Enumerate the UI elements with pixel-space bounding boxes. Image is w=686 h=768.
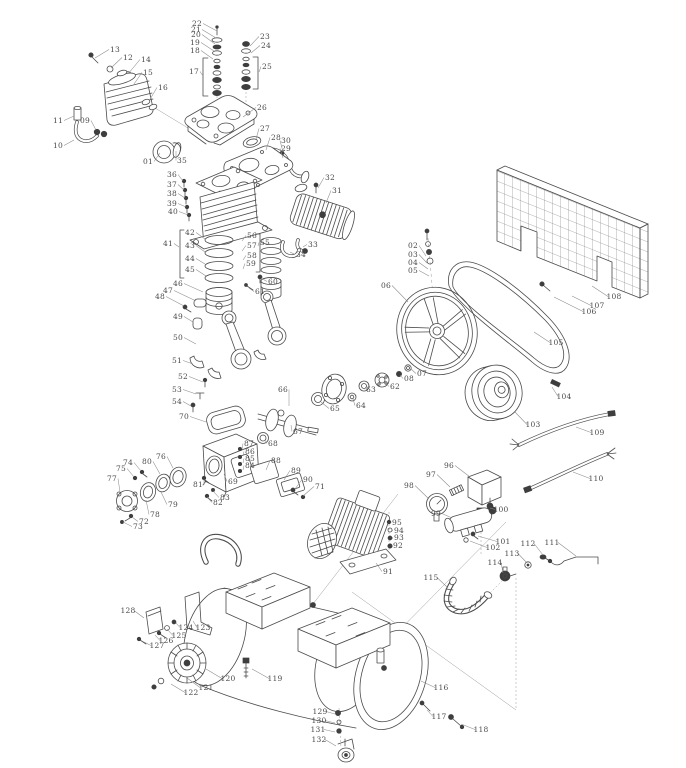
part-label-34: 34 [296, 250, 306, 259]
leader-line-44 [196, 259, 205, 265]
part-label-104: 104 [557, 392, 572, 401]
part-label-65: 65 [330, 404, 340, 413]
part-label-29: 29 [281, 144, 291, 153]
part-label-61: 61 [255, 287, 265, 296]
leader-line-98 [415, 486, 429, 500]
leader-line-04 [419, 263, 428, 270]
part-label-18: 18 [190, 46, 200, 55]
flywheel [387, 278, 487, 384]
part-label-121: 121 [199, 683, 214, 692]
part-label-108: 108 [607, 292, 622, 301]
part-label-90: 90 [303, 475, 313, 484]
exploded-diagram: 0102030405060708091011121314151617181920… [0, 0, 686, 768]
part-label-06: 06 [381, 281, 391, 290]
part-label-54: 54 [172, 397, 182, 406]
leader-line-24 [251, 46, 260, 54]
leader-line-55 [258, 243, 259, 247]
leader-line-31 [326, 191, 331, 204]
leader-line-07 [411, 369, 416, 374]
leader-line-97 [437, 475, 450, 488]
leader-line-102 [470, 541, 487, 548]
pulley-fasteners [348, 365, 411, 401]
electric-motor [303, 484, 396, 574]
connecting-rod-left [222, 311, 251, 369]
part-label-31: 31 [332, 186, 342, 195]
part-label-35: 35 [177, 156, 187, 165]
leader-line-72 [132, 517, 138, 522]
part-label-112: 112 [521, 539, 536, 548]
leader-line-82 [207, 497, 212, 503]
part-label-28: 28 [271, 133, 281, 142]
fin-pack-screw [540, 282, 544, 286]
leader-line-70 [190, 417, 206, 423]
leader-line-131 [324, 730, 335, 733]
part-label-30: 30 [281, 136, 291, 145]
part-label-37: 37 [167, 180, 177, 189]
part-label-57: 57 [247, 241, 257, 250]
part-label-130: 130 [312, 716, 327, 725]
petcock-bolt [89, 53, 93, 57]
connecting-rod-right [261, 291, 286, 345]
part-label-80: 80 [142, 457, 152, 466]
part-label-66: 66 [278, 385, 288, 394]
part-label-132: 132 [312, 735, 327, 744]
part-label-15: 15 [143, 68, 153, 77]
part-label-123: 123 [196, 623, 211, 632]
part-label-63: 63 [366, 385, 376, 394]
leader-line-132 [325, 740, 336, 747]
ring-68 [258, 433, 269, 444]
part-label-73: 73 [133, 522, 143, 531]
leader-line-83 [213, 491, 219, 498]
after-cooler [288, 192, 357, 242]
leader-line-74 [134, 463, 141, 472]
part-label-127: 127 [150, 641, 165, 650]
leader-line-23 [250, 37, 259, 47]
part-label-79: 79 [168, 500, 178, 509]
end-cover-77 [117, 491, 138, 512]
drain-bolt-head [243, 658, 249, 663]
leader-line-32 [318, 178, 324, 189]
part-label-98: 98 [404, 481, 414, 490]
leader-line-119 [252, 669, 269, 679]
diagram-page: 0102030405060708091011121314151617181920… [0, 0, 686, 768]
part-label-52: 52 [178, 372, 188, 381]
part-label-64: 64 [356, 401, 366, 410]
leader-line-73 [123, 522, 132, 527]
part-label-76: 76 [156, 452, 166, 461]
cylinder-head [185, 96, 257, 146]
part-label-114: 114 [488, 558, 503, 567]
leader-line-107 [572, 296, 591, 306]
part-label-87: 87 [244, 439, 254, 448]
part-label-129: 129 [313, 707, 328, 716]
part-label-107: 107 [590, 301, 605, 310]
part-label-95: 95 [392, 518, 402, 527]
leader-line-17 [200, 72, 203, 77]
part-label-02: 02 [408, 241, 418, 250]
part-label-45: 45 [185, 265, 195, 274]
part-label-86: 86 [245, 447, 255, 456]
part-label-10: 10 [53, 141, 63, 150]
part-label-42: 42 [185, 228, 195, 237]
part-label-19: 19 [190, 38, 200, 47]
shaft-key [551, 379, 561, 386]
part-label-113: 113 [505, 549, 520, 558]
part-label-22: 22 [192, 19, 202, 28]
part-label-43: 43 [185, 241, 195, 250]
part-label-99: 99 [431, 509, 441, 518]
power-cable-lower [523, 448, 616, 493]
leader-line-111 [558, 543, 576, 557]
part-label-23: 23 [260, 32, 270, 41]
part-label-59: 59 [246, 259, 256, 268]
part-label-97: 97 [426, 470, 436, 479]
motor-pulley [459, 360, 527, 426]
part-label-17: 17 [189, 67, 199, 76]
part-label-92: 92 [393, 541, 403, 550]
part-label-16: 16 [158, 83, 168, 92]
leader-line-34 [290, 252, 295, 255]
wrist-pin [194, 299, 206, 307]
part-label-102: 102 [486, 543, 501, 552]
leader-line-25 [259, 67, 261, 73]
part-label-26: 26 [257, 103, 267, 112]
leader-line-75 [127, 469, 134, 478]
part-label-89: 89 [291, 466, 301, 475]
part-label-83: 83 [220, 493, 230, 502]
part-label-117: 117 [432, 712, 447, 721]
part-label-13: 13 [110, 45, 120, 54]
leader-line-77 [118, 479, 120, 493]
fin-pack [497, 166, 648, 298]
leader-line-96 [455, 466, 470, 478]
part-label-111: 111 [545, 538, 560, 547]
bracket-17 [203, 58, 208, 96]
flywheel-bolt-stack [425, 229, 433, 264]
part-label-41: 41 [163, 239, 173, 248]
part-label-32: 32 [325, 173, 335, 182]
leader-line-52 [189, 377, 203, 383]
discharge-hose [444, 576, 502, 613]
part-label-01: 01 [143, 157, 153, 166]
part-label-115: 115 [424, 573, 439, 582]
part-label-119: 119 [268, 674, 283, 683]
block-bolts [182, 179, 191, 221]
part-label-33: 33 [308, 240, 318, 249]
leader-line-45 [196, 270, 206, 277]
leader-line-53 [183, 390, 196, 395]
part-label-12: 12 [123, 53, 133, 62]
part-label-11: 11 [53, 116, 63, 125]
part-label-109: 109 [590, 428, 605, 437]
leader-line-13 [95, 50, 109, 59]
part-label-51: 51 [172, 356, 182, 365]
part-label-24: 24 [261, 41, 271, 50]
part-label-49: 49 [173, 312, 183, 321]
part-label-09: 09 [80, 116, 90, 125]
leader-line-128 [134, 611, 144, 619]
part-label-50: 50 [173, 333, 183, 342]
leader-line-41 [174, 244, 179, 248]
crankshaft [258, 408, 318, 438]
part-label-67: 67 [293, 427, 303, 436]
leader-line-10 [64, 140, 74, 146]
part-label-70: 70 [179, 412, 189, 421]
leader-line-33 [303, 245, 307, 248]
part-label-68: 68 [268, 439, 278, 448]
part-label-53: 53 [172, 385, 182, 394]
leader-line-47 [174, 291, 196, 302]
valve-stack-left [203, 26, 222, 96]
part-label-120: 120 [221, 674, 236, 683]
leader-line-78 [146, 500, 149, 515]
leader-line-11 [64, 116, 74, 121]
leader-line-39 [178, 204, 186, 208]
leader-line-36 [178, 175, 183, 182]
part-label-27: 27 [260, 124, 270, 133]
leader-line-46 [184, 284, 203, 293]
leader-line-50 [184, 338, 196, 345]
part-label-91: 91 [383, 567, 393, 576]
pin-sleeve-49 [193, 318, 202, 329]
part-label-96: 96 [444, 461, 454, 470]
part-label-100: 100 [494, 505, 509, 514]
leader-line-76 [167, 457, 173, 469]
crankcase-gasket [205, 404, 248, 436]
leader-line-49 [184, 317, 193, 323]
part-label-44: 44 [185, 254, 195, 263]
pipe-washer [94, 129, 100, 135]
part-label-38: 38 [167, 189, 177, 198]
part-label-56: 56 [247, 231, 257, 240]
part-label-14: 14 [141, 55, 151, 64]
leader-line-80 [153, 462, 160, 475]
valve-stack-right [242, 42, 259, 90]
relief-valve [449, 485, 463, 496]
leader-line-12 [111, 58, 122, 69]
bracket-25 [253, 57, 258, 89]
leader-line-02 [419, 246, 426, 257]
part-label-125: 125 [172, 631, 187, 640]
caster-assembly [335, 710, 354, 762]
part-label-116: 116 [434, 683, 449, 692]
part-label-94: 94 [394, 526, 404, 535]
part-label-118: 118 [474, 725, 489, 734]
part-label-62: 62 [390, 382, 400, 391]
leader-line-48 [166, 297, 184, 307]
part-label-36: 36 [167, 170, 177, 179]
part-label-77: 77 [107, 474, 117, 483]
part-label-71: 71 [315, 482, 325, 491]
part-label-78: 78 [150, 510, 160, 519]
leader-line-54 [183, 402, 191, 407]
part-label-88: 88 [271, 456, 281, 465]
part-label-105: 105 [549, 338, 564, 347]
part-label-122: 122 [184, 688, 199, 697]
part-label-46: 46 [173, 279, 183, 288]
leader-line-57 [242, 246, 246, 252]
leader-line-79 [161, 492, 167, 505]
piston-left [183, 288, 232, 315]
part-label-110: 110 [589, 474, 604, 483]
outlet-pipe [548, 557, 598, 565]
part-label-08: 08 [404, 374, 414, 383]
platform-bolt [311, 603, 316, 608]
leader-line-51 [183, 361, 193, 365]
leader-line-22 [203, 24, 217, 32]
part-label-25: 25 [262, 62, 272, 71]
part-label-55: 55 [260, 238, 270, 247]
part-label-07: 07 [417, 369, 427, 378]
part-label-40: 40 [168, 207, 178, 216]
part-label-48: 48 [155, 292, 165, 301]
leader-line-38 [178, 194, 185, 199]
part-label-128: 128 [121, 606, 136, 615]
leader-line-09 [91, 121, 96, 131]
leader-line-06 [392, 286, 408, 303]
part-label-81: 81 [193, 480, 203, 489]
part-label-103: 103 [526, 420, 541, 429]
rod-caps-and-bolts [190, 350, 266, 412]
part-label-05: 05 [408, 266, 418, 275]
leader-line-37 [178, 185, 184, 191]
part-label-75: 75 [116, 464, 126, 473]
leader-line-110 [573, 472, 590, 479]
air-tank [173, 537, 441, 739]
bracket-41 [180, 230, 184, 278]
leader-line-21 [202, 30, 216, 39]
leader-line-05 [419, 271, 429, 277]
part-label-60: 60 [268, 277, 278, 286]
leader-line-99 [442, 514, 452, 519]
leader-line-19 [201, 43, 214, 52]
part-label-69: 69 [228, 477, 238, 486]
part-label-131: 131 [311, 725, 326, 734]
leader-line-59 [243, 264, 245, 270]
intake-pipe [74, 106, 107, 141]
